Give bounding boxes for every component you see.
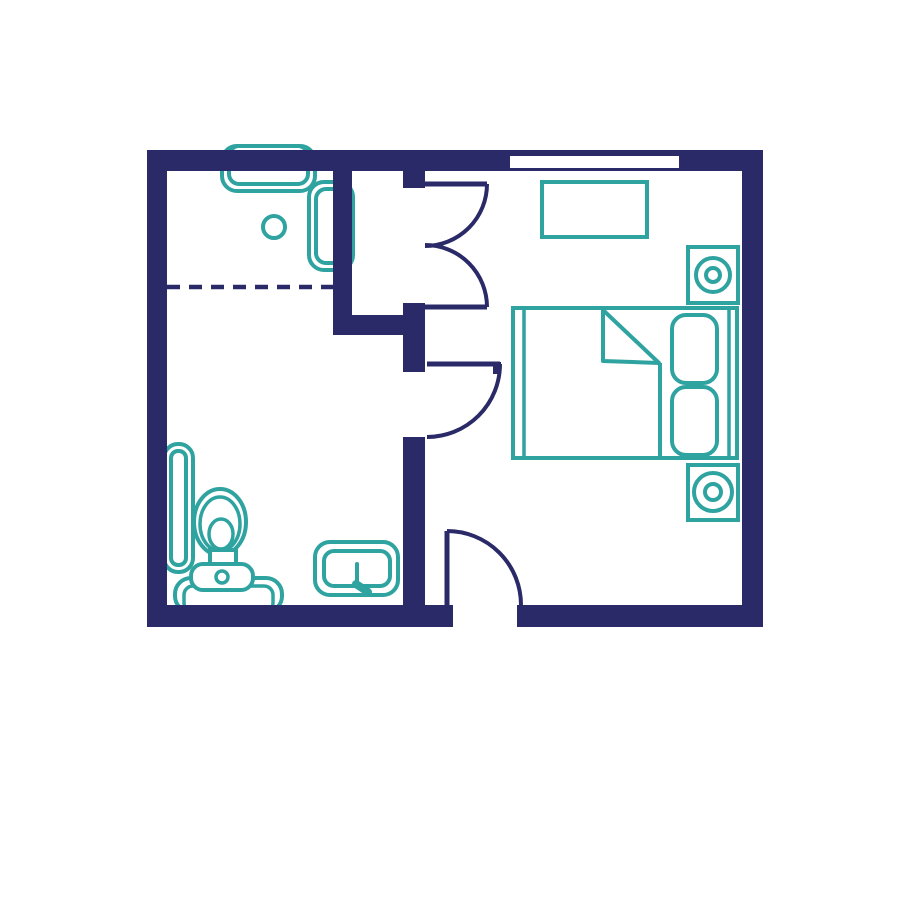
door-swing-arc <box>447 531 521 605</box>
wall-center-lower <box>403 437 425 605</box>
door-swing-arc-lower <box>425 245 487 307</box>
speaker-cone-inner <box>705 484 721 500</box>
door-jamb-top <box>403 171 425 188</box>
toilet-seat-hinge <box>191 564 253 590</box>
bathroom-door <box>427 362 501 437</box>
door-jamb-middle <box>403 303 425 372</box>
sink <box>315 542 398 595</box>
radiator <box>164 444 193 572</box>
radiator-outer <box>164 444 193 572</box>
wall-closet-bottom <box>352 315 403 335</box>
speaker-cone-outer <box>696 258 730 292</box>
speaker-cone-inner <box>706 268 720 282</box>
entry-door <box>447 531 521 605</box>
wall-closet-left <box>333 171 352 335</box>
floor-plan-page <box>0 0 900 900</box>
wall-bottom-left <box>147 605 453 627</box>
wall-right <box>742 150 763 627</box>
double-bed <box>513 308 737 458</box>
desk <box>542 182 647 237</box>
wall-left <box>147 150 167 627</box>
closet-double-door <box>425 184 487 307</box>
wall-bottom-right <box>517 605 763 627</box>
window <box>510 156 679 168</box>
speaker-nightstand-top <box>688 247 738 303</box>
door-swing-arc-upper <box>425 184 487 246</box>
speaker-cone-outer <box>694 473 732 511</box>
door-swing-arc <box>427 364 500 437</box>
radiator-inner <box>171 451 186 565</box>
shower-drain-icon <box>263 216 285 238</box>
floor-plan-canvas <box>0 0 900 900</box>
speaker-nightstand-bottom <box>688 465 738 520</box>
